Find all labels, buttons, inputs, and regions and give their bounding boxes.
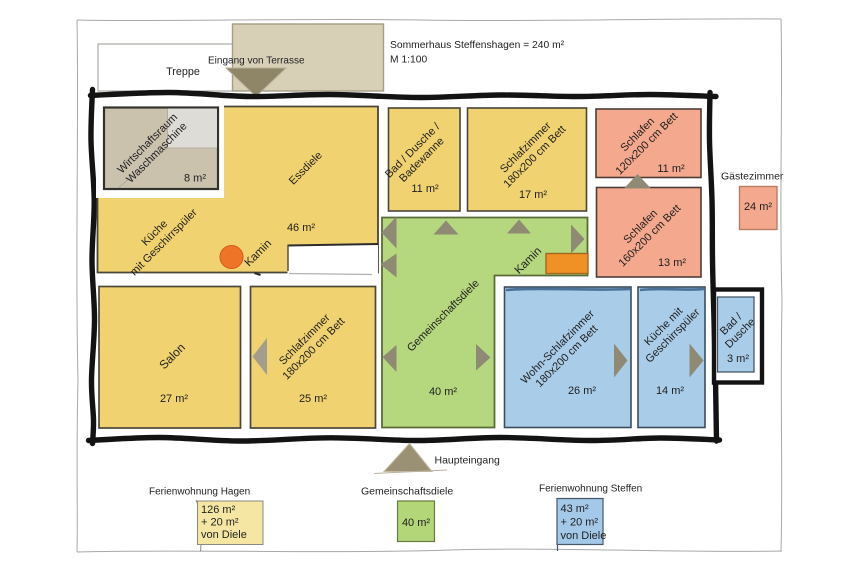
svg-text:Eingang von Terrasse: Eingang von Terrasse (208, 56, 305, 67)
svg-text:+ 20 m²: + 20 m² (561, 517, 599, 529)
svg-text:11 m²: 11 m² (657, 163, 685, 175)
svg-text:126 m²: 126 m² (201, 504, 236, 516)
svg-text:Haupteingang: Haupteingang (435, 455, 501, 467)
svg-text:24 m²: 24 m² (744, 201, 772, 213)
svg-text:46 m²: 46 m² (287, 222, 315, 234)
svg-text:40 m²: 40 m² (402, 517, 430, 529)
svg-text:Treppe: Treppe (166, 66, 200, 78)
svg-text:43 m²: 43 m² (561, 503, 589, 515)
svg-text:+ 20 m²: + 20 m² (201, 517, 239, 529)
svg-text:Ferienwohnung Steffen: Ferienwohnung Steffen (539, 484, 642, 495)
svg-text:3 m²: 3 m² (727, 353, 749, 365)
svg-text:11 m²: 11 m² (411, 183, 439, 195)
svg-text:25 m²: 25 m² (299, 393, 327, 405)
svg-text:26 m²: 26 m² (568, 385, 596, 397)
svg-text:Ferienwohnung Hagen: Ferienwohnung Hagen (149, 487, 250, 498)
svg-text:von Diele: von Diele (201, 529, 247, 541)
svg-text:14 m²: 14 m² (656, 385, 684, 397)
svg-text:8 m²: 8 m² (184, 173, 206, 185)
svg-text:17 m²: 17 m² (519, 189, 547, 201)
svg-text:Gästezimmer: Gästezimmer (721, 171, 784, 183)
svg-text:40 m²: 40 m² (429, 386, 457, 398)
svg-text:13 m²: 13 m² (658, 257, 686, 269)
svg-text:Sommerhaus Steffenshagen = 240: Sommerhaus Steffenshagen = 240 m² (390, 40, 565, 51)
svg-text:Gemeinschaftsdiele: Gemeinschaftsdiele (361, 486, 453, 498)
svg-text:von Diele: von Diele (561, 530, 607, 542)
svg-text:M 1:100: M 1:100 (390, 55, 427, 66)
svg-text:27 m²: 27 m² (160, 393, 188, 405)
